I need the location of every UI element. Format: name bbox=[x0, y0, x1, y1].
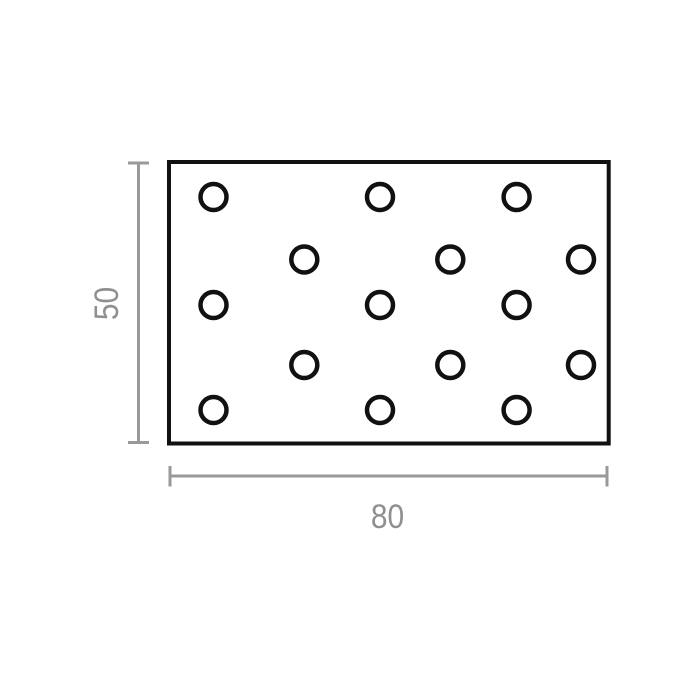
svg-text:50: 50 bbox=[87, 287, 125, 320]
svg-text:80: 80 bbox=[371, 497, 404, 535]
